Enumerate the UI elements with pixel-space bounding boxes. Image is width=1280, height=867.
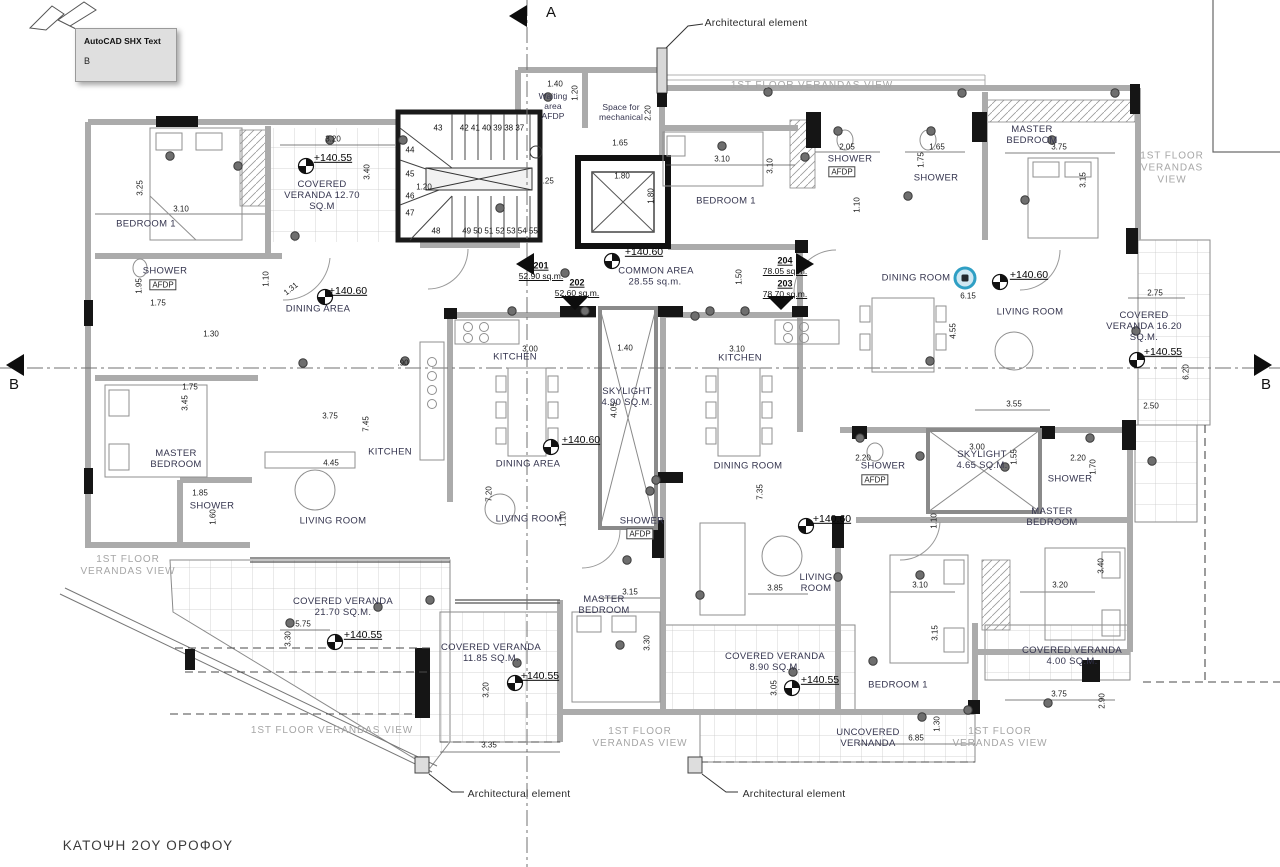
left-arrow-icon — [6, 354, 24, 376]
grip-point — [927, 127, 935, 135]
right-arrow-icon — [1254, 354, 1272, 376]
grip-point — [869, 657, 877, 665]
grip-point — [166, 152, 174, 160]
autocad-shx-tooltip: AutoCAD SHX Text B — [75, 28, 177, 82]
tooltip-title: AutoCAD SHX Text — [84, 36, 176, 46]
grip-point — [926, 357, 934, 365]
grip-point — [718, 142, 726, 150]
grip-point — [706, 307, 714, 315]
grip-point — [399, 136, 407, 144]
grip-point — [652, 476, 660, 484]
grip-point — [374, 603, 382, 611]
grip-point — [1044, 699, 1052, 707]
grip-point — [1021, 196, 1029, 204]
down-arrow-icon — [767, 296, 795, 310]
grip-point — [696, 591, 704, 599]
grip-point — [856, 434, 864, 442]
grip-point — [616, 641, 624, 649]
grip-point — [426, 596, 434, 604]
grip-point — [1048, 136, 1056, 144]
grip-point — [1132, 327, 1140, 335]
veranda-grids — [170, 128, 1210, 768]
grip-point — [581, 307, 589, 315]
grip-point — [561, 269, 569, 277]
grip-point — [834, 127, 842, 135]
grip-point — [741, 307, 749, 315]
grip-point — [958, 89, 966, 97]
grip-point — [496, 204, 504, 212]
highlight-marker-dot — [962, 275, 969, 282]
grip-point — [646, 487, 654, 495]
left-arrow-icon — [509, 5, 527, 27]
elevation-marker-icon — [325, 290, 333, 298]
grip-point — [964, 706, 972, 714]
grip-point — [544, 93, 552, 101]
grip-point — [764, 88, 772, 96]
grip-point — [1001, 463, 1009, 471]
elevation-marker-icon — [605, 261, 613, 269]
elevation-marker-icon — [551, 440, 559, 448]
grip-point — [801, 153, 809, 161]
grip-point — [401, 357, 409, 365]
grip-point — [291, 232, 299, 240]
grip-point — [1086, 434, 1094, 442]
grip-point — [1111, 89, 1119, 97]
plan-linework — [0, 0, 1280, 867]
elevation-marker-icon — [806, 519, 814, 527]
grip-point — [326, 136, 334, 144]
grip-point — [918, 713, 926, 721]
elevation-marker-icon — [318, 297, 326, 305]
grip-point — [834, 573, 842, 581]
elevation-marker-icon — [1130, 360, 1138, 368]
elevation-marker-icon — [544, 447, 552, 455]
grip-point — [916, 452, 924, 460]
grip-point — [789, 668, 797, 676]
grip-point — [508, 307, 516, 315]
right-arrow-icon — [796, 253, 814, 275]
left-arrow-icon — [516, 253, 534, 275]
floor-plan-canvas[interactable]: AutoCAD SHX Text B BEDROOM 1SHOWERAFDPDI… — [0, 0, 1280, 867]
north-arrow-sketch — [30, 2, 96, 30]
elevation-marker-icon — [799, 526, 807, 534]
elevation-marker-icon — [993, 282, 1001, 290]
grip-point — [904, 192, 912, 200]
grip-point — [513, 659, 521, 667]
grip-point — [299, 359, 307, 367]
grip-point — [286, 619, 294, 627]
elevator — [578, 158, 668, 246]
elevation-marker-icon — [1000, 275, 1008, 283]
grip-point — [623, 556, 631, 564]
grip-point — [1148, 457, 1156, 465]
grip-point — [691, 312, 699, 320]
tooltip-line: B — [84, 56, 176, 66]
grip-point — [916, 571, 924, 579]
staircase — [398, 112, 542, 240]
grip-point — [234, 162, 242, 170]
elevation-marker-icon — [612, 254, 620, 262]
